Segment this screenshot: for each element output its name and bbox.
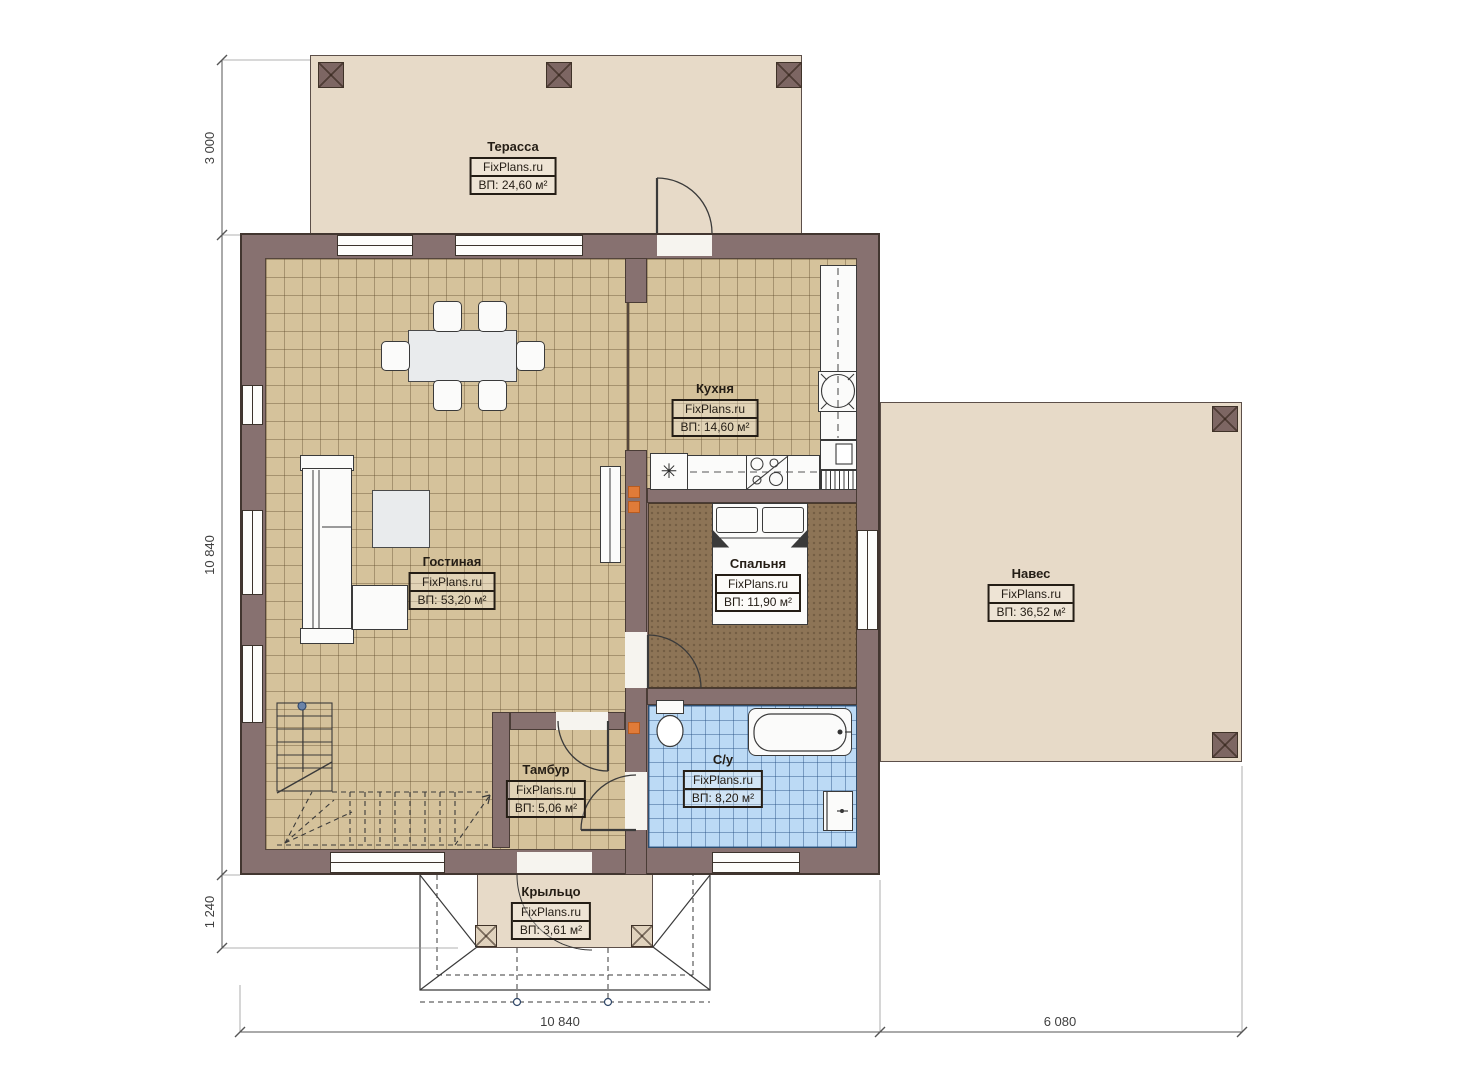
pillow: [762, 507, 804, 533]
wall-kitchen-bedroom: [647, 488, 857, 503]
room-area: ВП: 24,60 м²: [472, 177, 555, 193]
sofa-body: [302, 468, 352, 630]
brand-watermark: FixPlans.ru: [472, 159, 555, 177]
room-label-kitchen: Кухня FixPlans.ru ВП: 14,60 м²: [672, 381, 759, 437]
dining-chair: [478, 301, 507, 332]
brand-watermark: FixPlans.ru: [674, 401, 757, 419]
room-area: ВП: 5,06 м²: [508, 800, 584, 816]
room-name: Крыльцо: [521, 884, 580, 899]
window-bottom-2: [712, 852, 800, 873]
window-bottom-1: [330, 852, 445, 873]
room-name: Кухня: [696, 381, 734, 396]
stove: [746, 455, 788, 490]
sofa-bottom-cap: [300, 628, 354, 644]
window-top-1: [337, 235, 413, 256]
dimension-bottom-right: 6 080: [1044, 1014, 1077, 1029]
room-label-canopy: Навес FixPlans.ru ВП: 36,52 м²: [988, 566, 1075, 622]
canopy-post: [1212, 406, 1238, 432]
room-name: Навес: [1012, 566, 1051, 581]
door-opening-vestibule: [556, 712, 608, 730]
brand-watermark: FixPlans.ru: [990, 586, 1073, 604]
window-left-2: [242, 510, 263, 595]
room-name: С/у: [713, 752, 733, 767]
dining-table: [408, 330, 517, 382]
room-name: Терасса: [487, 139, 539, 154]
dimension-left-bottom: 1 240: [202, 896, 217, 929]
vent-marker: [628, 722, 640, 734]
window-right-bedroom: [857, 530, 878, 630]
door-opening-bedroom: [625, 632, 647, 688]
wall-living-kitchen-stub: [625, 258, 647, 303]
fridge: ✳: [650, 453, 688, 490]
room-area: ВП: 3,61 м²: [513, 922, 589, 938]
porch-post: [631, 925, 653, 947]
room-area: ВП: 53,20 м²: [411, 592, 494, 608]
window-left-1: [242, 385, 263, 425]
room-area: ВП: 8,20 м²: [685, 790, 761, 806]
kitchen-counter-right: [820, 265, 857, 440]
dining-chair: [381, 341, 410, 371]
terrace-post: [546, 62, 572, 88]
room-area: ВП: 11,90 м²: [717, 594, 799, 610]
brand-watermark: FixPlans.ru: [513, 904, 589, 922]
door-opening-terrace: [657, 235, 712, 256]
room-name: Спальня: [730, 556, 786, 571]
window-left-3: [242, 645, 263, 723]
floor-plan-canvas: ✳: [0, 0, 1473, 1080]
dining-chair: [478, 380, 507, 411]
porch-post: [475, 925, 497, 947]
brand-watermark: FixPlans.ru: [717, 576, 799, 594]
pillow: [716, 507, 758, 533]
fridge-snowflake-icon: ✳: [661, 462, 678, 482]
room-label-porch: Крыльцо FixPlans.ru ВП: 3,61 м²: [511, 884, 591, 940]
terrace-post: [776, 62, 802, 88]
window-top-2: [455, 235, 583, 256]
dishwasher: [820, 440, 857, 470]
door-opening-bathroom: [625, 772, 647, 830]
dining-chair: [433, 301, 462, 332]
toilet-tank: [656, 700, 684, 714]
room-label-vestibule: Тамбур FixPlans.ru ВП: 5,06 м²: [506, 762, 586, 818]
coffee-table: [372, 490, 430, 548]
dining-chair: [516, 341, 545, 371]
brand-watermark: FixPlans.ru: [508, 782, 584, 800]
tv-cabinet: [600, 466, 621, 563]
dimension-left-middle: 10 840: [202, 535, 217, 575]
washing-machine: [823, 791, 853, 831]
dimension-bottom-left: 10 840: [540, 1014, 580, 1029]
terrace-post: [318, 62, 344, 88]
room-area: ВП: 14,60 м²: [674, 419, 757, 435]
kitchen-sink: [818, 371, 857, 412]
sofa-chaise: [352, 585, 408, 630]
room-label-bedroom: Спальня FixPlans.ru ВП: 11,90 м²: [715, 556, 801, 612]
room-label-terrace: Терасса FixPlans.ru ВП: 24,60 м²: [470, 139, 557, 195]
brand-watermark: FixPlans.ru: [411, 574, 494, 592]
brand-watermark: FixPlans.ru: [685, 772, 761, 790]
room-area: ВП: 36,52 м²: [990, 604, 1073, 620]
bathtub: [748, 708, 852, 756]
room-label-bathroom: С/у FixPlans.ru ВП: 8,20 м²: [683, 752, 763, 808]
vent-marker: [628, 501, 640, 513]
dimension-left-top: 3 000: [202, 132, 217, 165]
heater-grid: [820, 470, 857, 490]
room-name: Гостиная: [423, 554, 482, 569]
door-opening-porch: [517, 852, 592, 873]
vent-marker: [628, 486, 640, 498]
room-name: Тамбур: [522, 762, 569, 777]
canopy-post: [1212, 732, 1238, 758]
dining-chair: [433, 380, 462, 411]
room-label-living: Гостиная FixPlans.ru ВП: 53,20 м²: [409, 554, 496, 610]
